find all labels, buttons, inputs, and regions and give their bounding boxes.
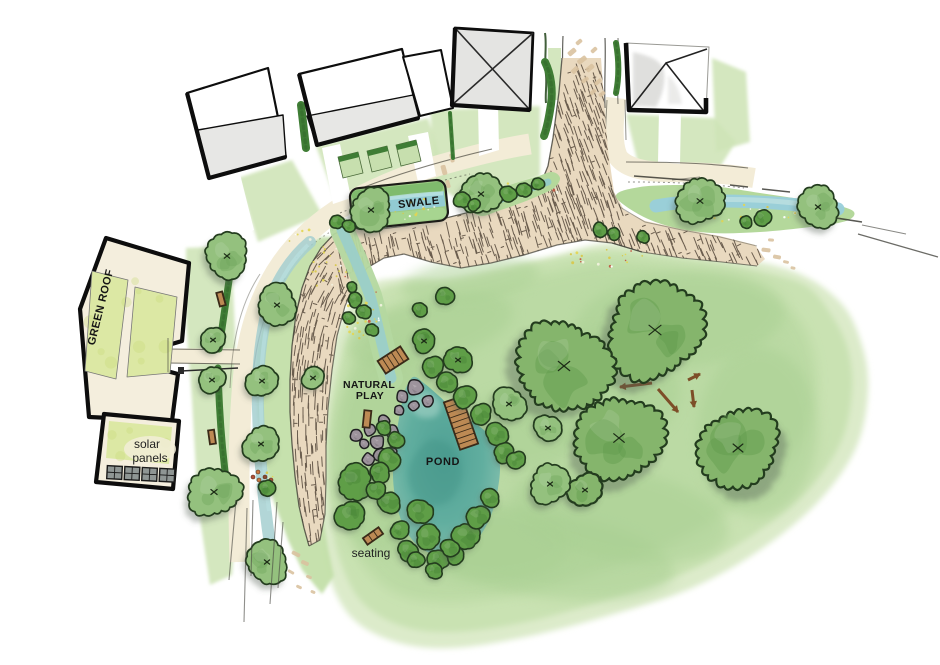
svg-text:seating: seating bbox=[352, 546, 391, 560]
svg-text:solar: solar bbox=[134, 437, 160, 451]
svg-text:PLAY: PLAY bbox=[356, 390, 384, 402]
svg-text:POND: POND bbox=[426, 456, 460, 468]
svg-text:panels: panels bbox=[132, 451, 167, 465]
